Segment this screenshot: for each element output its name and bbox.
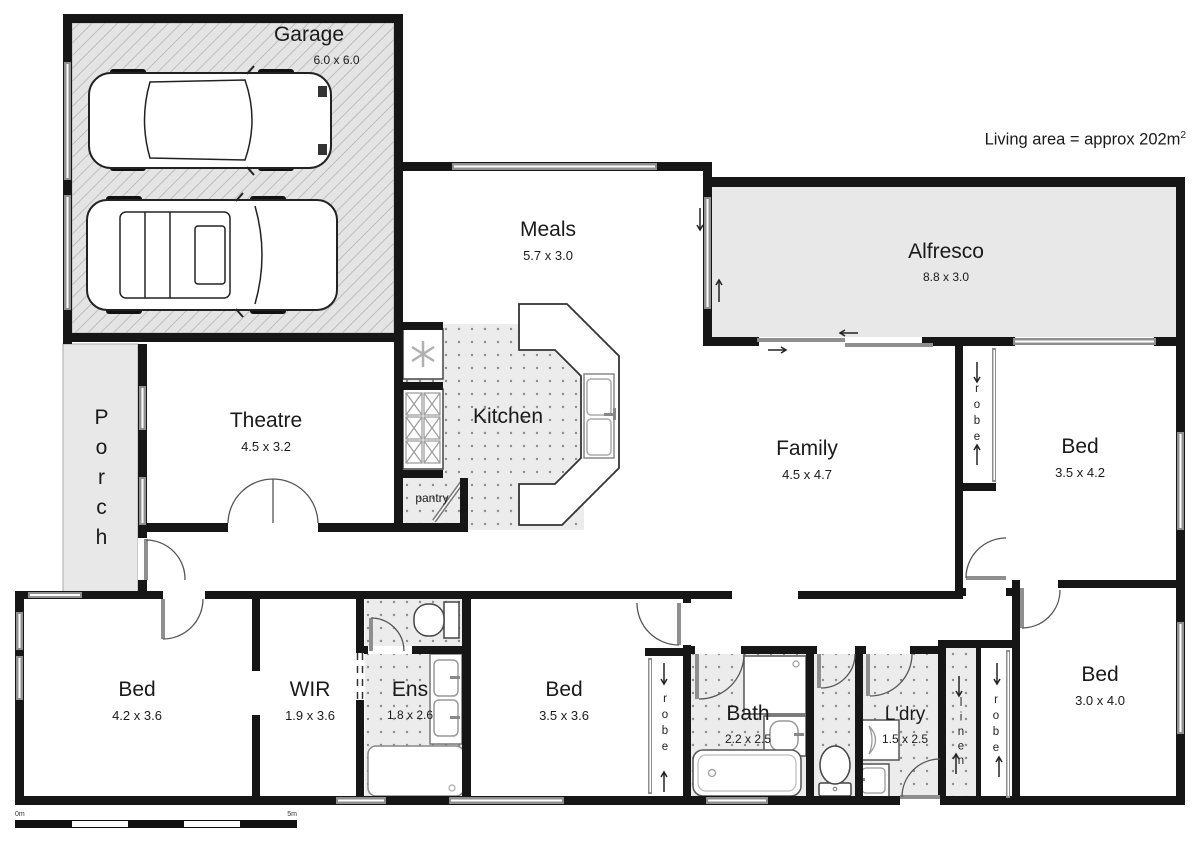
robe-sliding-door	[1006, 650, 1010, 798]
car-top-view-2	[87, 193, 337, 317]
vanity-double-sink-icon	[430, 654, 462, 744]
window	[1013, 338, 1156, 345]
toilet-icon	[414, 602, 459, 638]
theatre-double-door	[228, 479, 273, 523]
room-label-theatre: Theatre 4.5 x 3.2	[230, 410, 302, 453]
sliding-door	[757, 338, 933, 347]
storage-label-linen: linen	[955, 697, 967, 770]
arrow-down-icon	[994, 663, 1000, 684]
scale-end-label: 5m	[287, 811, 297, 818]
window	[449, 797, 564, 804]
room-label-bed-bottom-left: Bed 4.2 x 3.6	[112, 679, 162, 722]
arrow-down-icon	[974, 362, 980, 382]
arrow-right-icon	[768, 347, 786, 353]
arrow-down-icon	[697, 208, 703, 230]
window	[16, 656, 23, 700]
room-label-bed-bottom-mid: Bed 3.5 x 3.6	[539, 679, 589, 722]
room-label-ens: Ens 1.8 x 2.6	[387, 679, 433, 721]
window	[704, 197, 711, 309]
living-area-superscript: 2	[1180, 130, 1186, 141]
window	[1177, 432, 1184, 530]
living-area-note: Living area = approx 202m2	[985, 130, 1186, 150]
arrow-up-icon	[661, 772, 667, 792]
window	[28, 592, 82, 598]
robe-sliding-door	[648, 658, 652, 794]
room-label-porch: Porch	[89, 406, 113, 556]
arrow-up-icon	[996, 757, 1002, 777]
storage-label-robe-mid: robe	[659, 693, 671, 757]
window	[336, 797, 386, 804]
room-label-wir: WIR 1.9 x 3.6	[285, 679, 335, 722]
window	[16, 612, 23, 650]
window	[139, 386, 146, 430]
room-label-pantry: pantry	[415, 491, 448, 505]
room-label-alfresco: Alfresco 8.8 x 3.0	[908, 241, 984, 283]
bathtub-icon	[368, 746, 464, 796]
floor-plan-drawing	[0, 0, 1200, 849]
window	[64, 62, 71, 180]
room-label-family: Family 4.5 x 4.7	[776, 438, 838, 481]
fridge-icon	[403, 329, 443, 379]
arrow-up-icon	[974, 445, 980, 465]
bathtub-icon	[693, 750, 801, 796]
living-area-text: Living area = approx 202m	[985, 131, 1181, 149]
room-label-bed-bottom-right: Bed 3.0 x 4.0	[1075, 664, 1125, 707]
window	[139, 477, 146, 525]
window	[706, 797, 768, 804]
scale-bar: 0m 5m	[15, 811, 297, 831]
window	[64, 195, 71, 310]
floor-plan: Living area = approx 202m2 Garage 6.0 x …	[0, 0, 1200, 849]
room-label-bed-top-right: Bed 3.5 x 4.2	[1055, 436, 1105, 479]
front-door-swing	[146, 540, 185, 580]
arrow-down-icon	[661, 663, 667, 684]
room-label-meals: Meals 5.7 x 3.0	[520, 219, 576, 262]
storage-label-robe-right: robe	[990, 694, 1002, 758]
scale-start-label: 0m	[15, 811, 25, 818]
robe-sliding-door	[992, 348, 996, 482]
front-door-leaf	[144, 539, 148, 580]
scale-bar-segments	[15, 820, 297, 828]
window	[1177, 622, 1184, 734]
window	[452, 163, 657, 170]
room-label-garage: Garage 6.0 x 6.0	[258, 24, 359, 66]
stove-icon	[403, 389, 443, 469]
room-label-kitchen: Kitchen	[473, 406, 543, 427]
room-label-bath: Bath 2.2 x 2.5	[725, 703, 771, 745]
storage-label-robe-family: robe	[971, 383, 983, 447]
car-top-view-1	[89, 66, 331, 175]
wc-toilet-icon	[819, 746, 851, 796]
double-sink-icon	[584, 374, 616, 458]
room-label-ldry: L'dry 1.5 x 2.5	[882, 705, 928, 745]
